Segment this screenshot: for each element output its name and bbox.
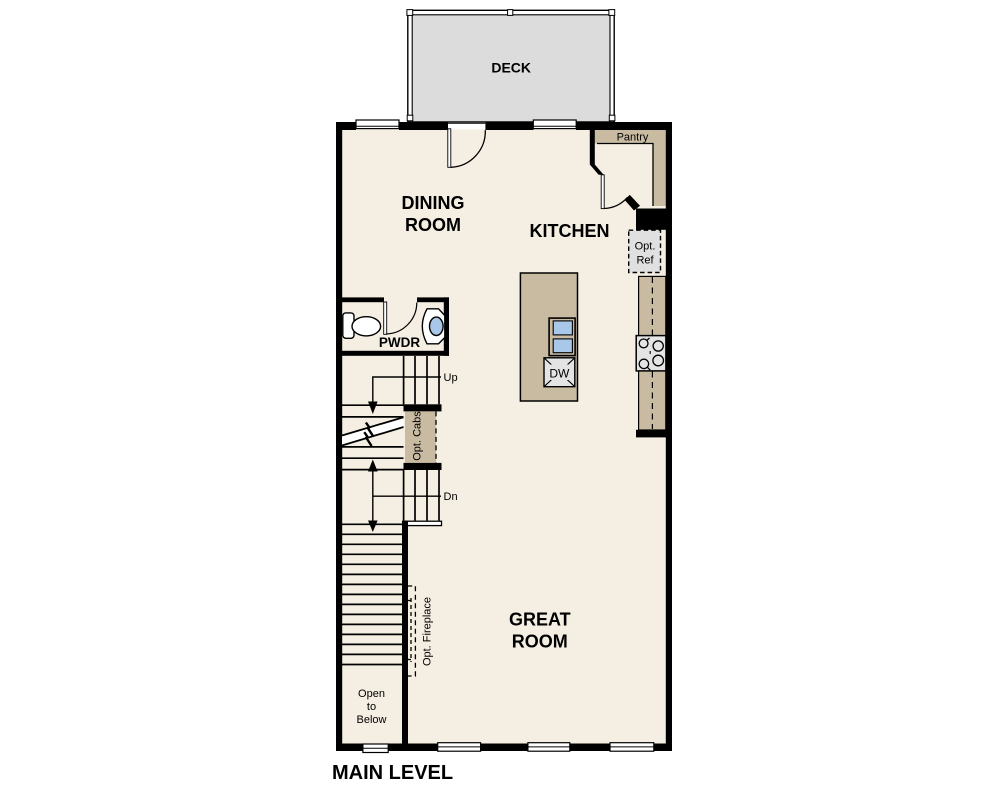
svg-text:KITCHEN: KITCHEN	[530, 221, 610, 241]
svg-text:Ref: Ref	[636, 255, 654, 267]
svg-text:PWDR: PWDR	[379, 335, 420, 350]
svg-text:MAIN LEVEL: MAIN LEVEL	[332, 762, 453, 784]
svg-text:Below: Below	[357, 714, 387, 726]
svg-text:DECK: DECK	[491, 59, 531, 75]
svg-text:Pantry: Pantry	[617, 132, 649, 144]
svg-text:DINING: DINING	[402, 193, 465, 213]
svg-text:Open: Open	[358, 688, 385, 700]
svg-text:DW: DW	[549, 366, 570, 380]
svg-text:ROOM: ROOM	[405, 215, 461, 235]
svg-text:Up: Up	[444, 372, 458, 384]
svg-text:to: to	[367, 701, 376, 713]
svg-text:Opt.: Opt.	[635, 241, 656, 253]
svg-text:ROOM: ROOM	[512, 632, 568, 652]
svg-text:Dn: Dn	[444, 491, 458, 503]
svg-text:GREAT: GREAT	[509, 610, 571, 630]
svg-text:Opt. Cabs: Opt. Cabs	[412, 411, 424, 461]
svg-text:Opt. Fireplace: Opt. Fireplace	[421, 597, 433, 666]
